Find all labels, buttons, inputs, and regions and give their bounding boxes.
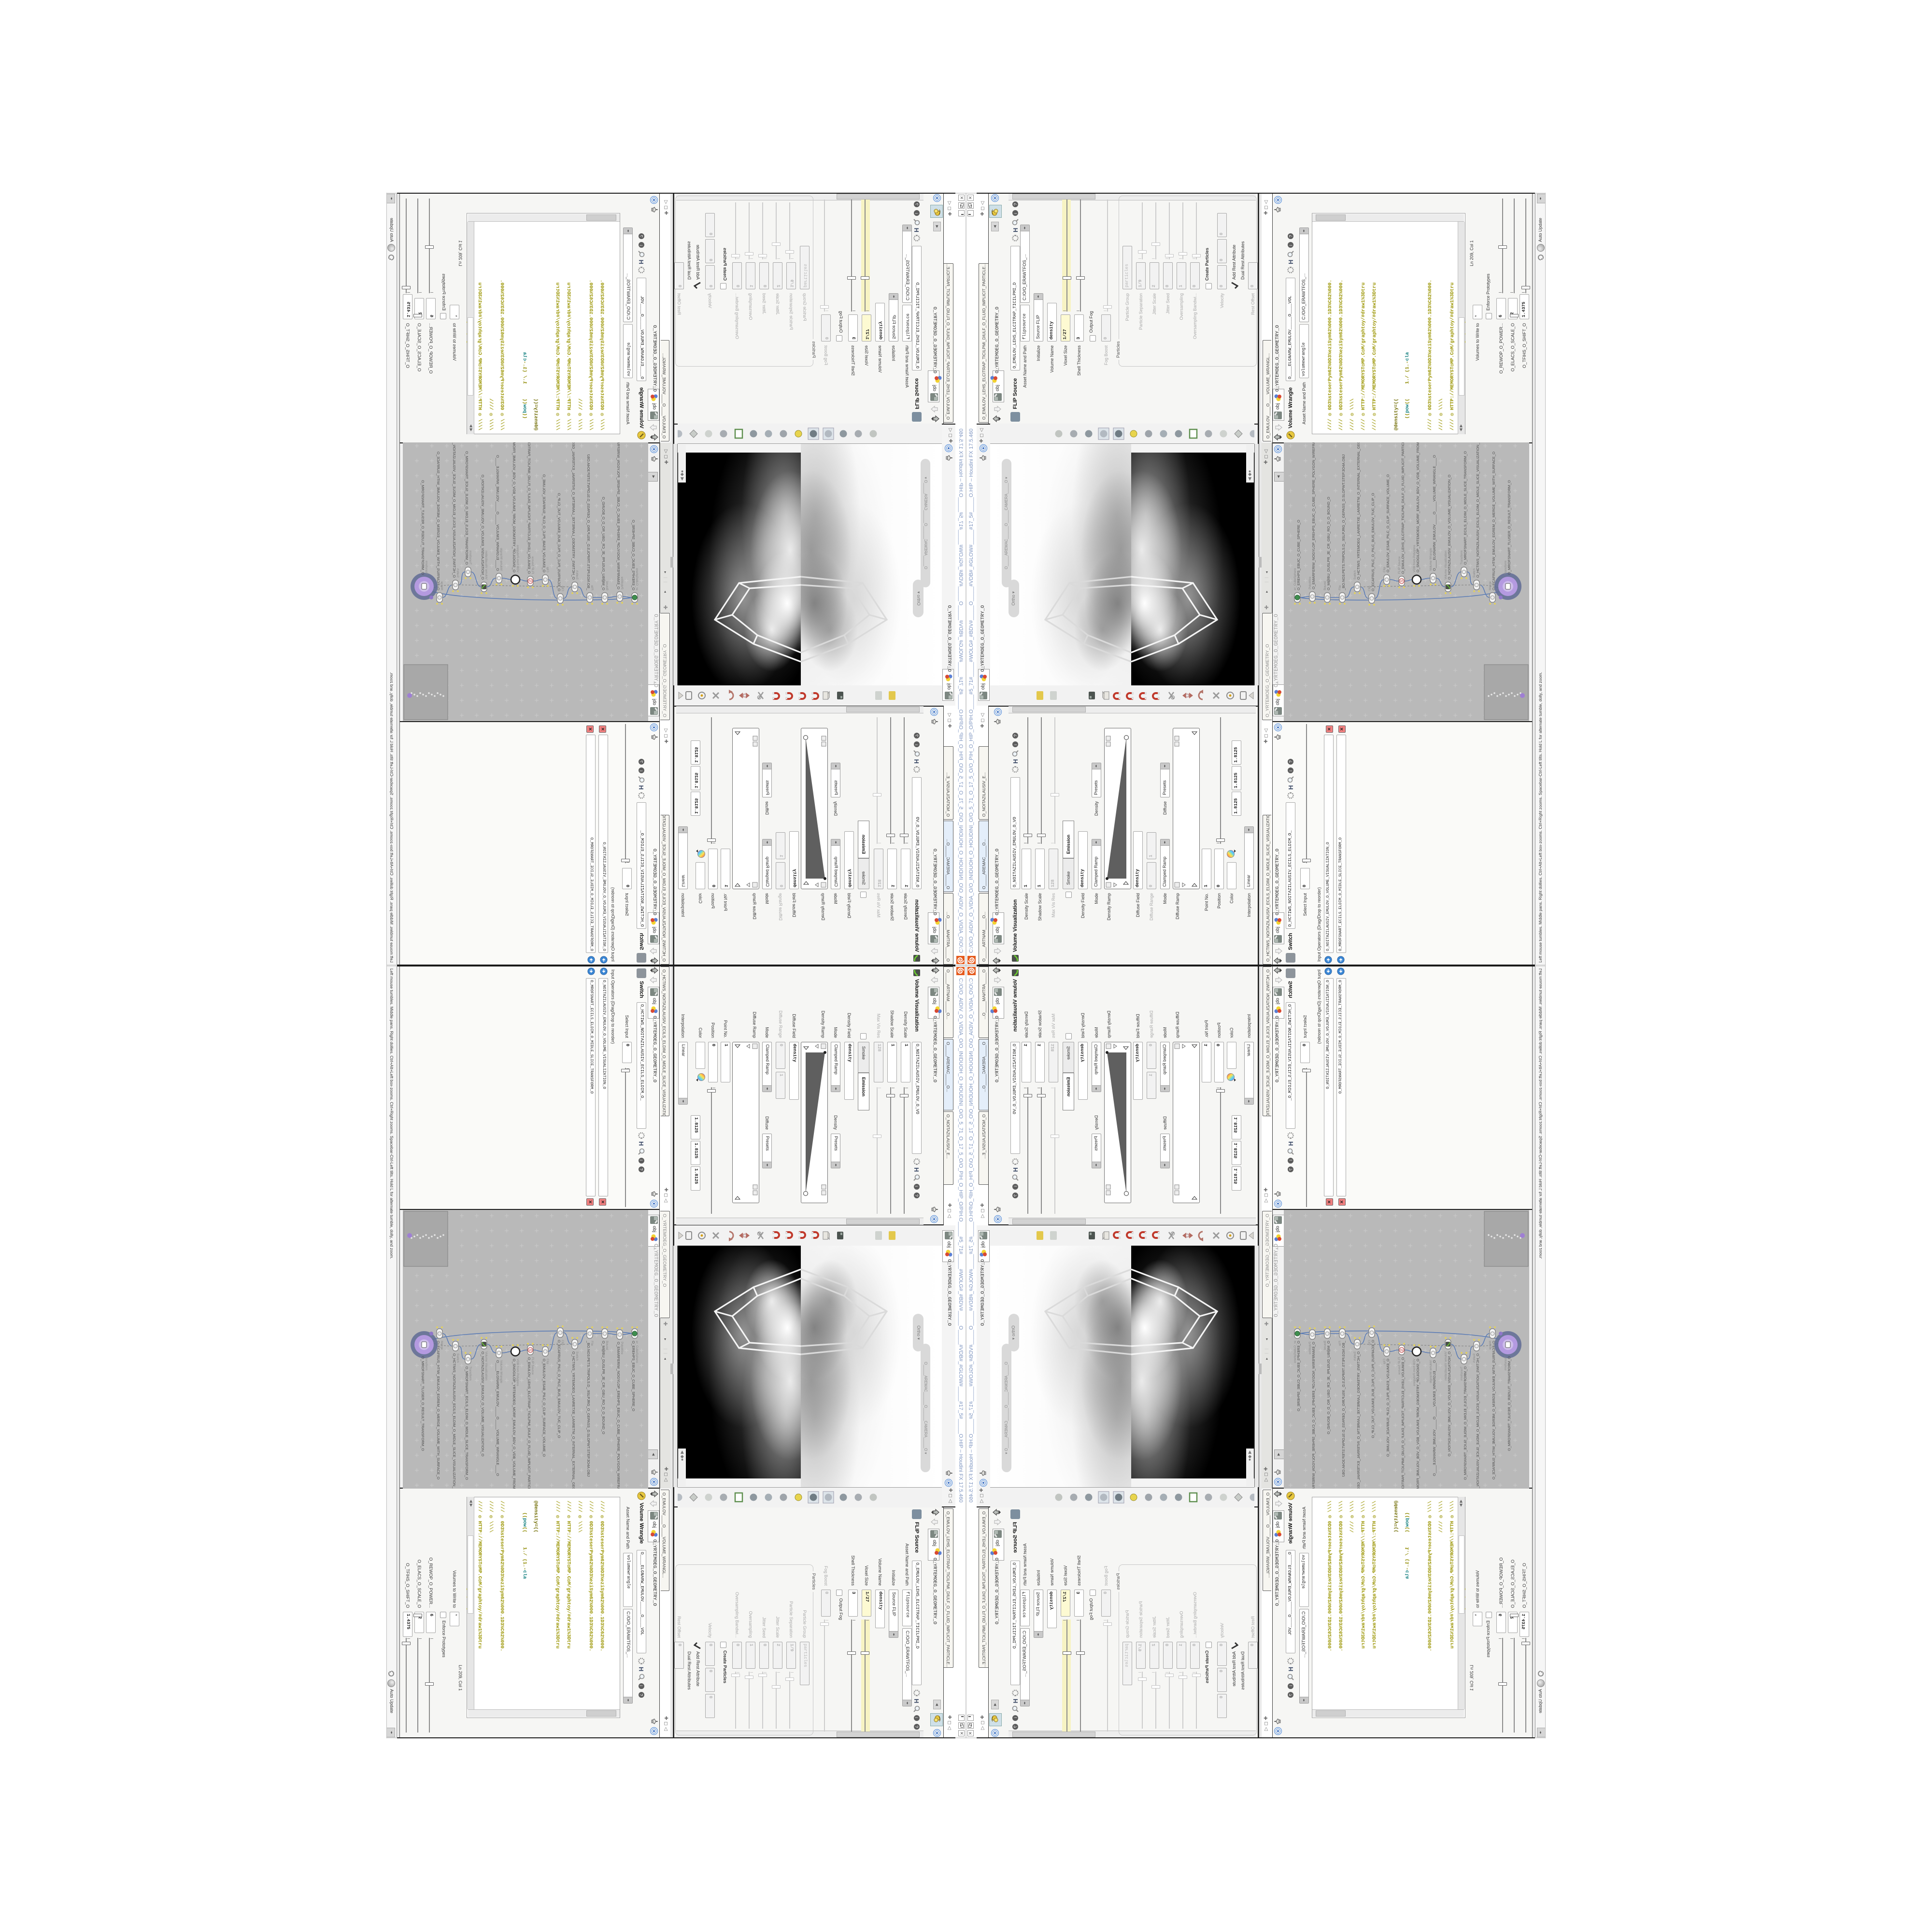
svg-text:?: ?: [639, 760, 644, 763]
svg-text:O_M@BU_DUSLPR_JE_CR_GBU_RO_D_O: O_M@BU_DUSLPR_JE_CR_GBU_RO_D_O_BOUND_O: [601, 497, 606, 590]
svg-text:VDB from Polygons: VDB from Polygons: [516, 545, 519, 572]
svg-text:i: i: [1013, 1186, 1018, 1187]
svg-text:O_HCTIWS_NOITAZILAUSIV_ECILS_E: O_HCTIWS_NOITAZILAUSIV_ECILS_ELDIM_O_MID…: [1476, 1353, 1480, 1489]
svg-text:?: ?: [914, 1726, 919, 1728]
svg-text:O_M@BU_DUSLPR_JE_CR_GBU_RO_D_O: O_M@BU_DUSLPR_JE_CR_GBU_RO_D_O_BOUND_O: [601, 1341, 606, 1435]
svg-text:?: ?: [1013, 734, 1018, 737]
svg-text:O____ELGNARW_EMULOV_____O_____: O____ELGNARW_EMULOV_____O_____VOLUME_WRA…: [496, 1360, 500, 1476]
svg-text:H: H: [913, 1167, 920, 1172]
svg-text:O_EMARFERIW_NOGYLOP_EREHPS_EBU: O_EMARFERIW_NOGYLOP_EREHPS_EBUC_O_CUBE_S…: [1311, 442, 1316, 589]
svg-text:O_ECAFRUS_PILC_O_PILC_BUS_EMUL: O_ECAFRUS_PILC_O_PILC_BUS_EMULOV_TUC_CLI…: [557, 1340, 561, 1438]
svg-text:i: i: [1289, 245, 1293, 246]
svg-text:H: H: [913, 228, 920, 232]
svg-text:H: H: [1012, 759, 1019, 764]
svg-text:H: H: [913, 759, 920, 764]
svg-text:i: i: [1289, 1160, 1293, 1161]
svg-text:O_MROFSNART_TLUSER_O_RESULT_TR: O_MROFSNART_TLUSER_O_RESULT_TRANSFORM_O: [1507, 1356, 1511, 1451]
svg-text:S: S: [1400, 1349, 1404, 1351]
svg-text:O_ECAFRUS_PILC_O_PILC_BUS_EMUL: O_ECAFRUS_PILC_O_PILC_BUS_EMULOV_TUC_CLI…: [1371, 493, 1375, 591]
svg-text:FLIP Source: FLIP Source: [531, 1357, 534, 1375]
svg-text:Transform: Transform: [469, 1366, 472, 1380]
svg-text:O_MROFSNART_ECILS_ELDIM_O_MIDL: O_MROFSNART_ECILS_ELDIM_O_MIDLE_SLICE_TR…: [465, 1366, 469, 1480]
svg-text:H: H: [638, 260, 645, 264]
svg-text:?: ?: [914, 1194, 919, 1197]
svg-text:i: i: [1013, 1717, 1018, 1718]
svg-text:O_EMULOV_ESAB_PILC_O_CLIP_SURF: O_EMULOV_ESAB_PILC_O_CLIP_SURFACE_VOLUME…: [542, 474, 546, 572]
svg-text:O_EMARFERIW_NOGYLOP_EREHPS_EBU: O_EMARFERIW_NOGYLOP_EREHPS_EBUC_O_CUBE_S…: [616, 1342, 621, 1489]
svg-text:PolyWire: PolyWire: [620, 577, 624, 589]
svg-text:O_NOITAZILAUSIV_EMULOV_O_VOLUM: O_NOITAZILAUSIV_EMULOV_O_VOLUME_VISUALIZ…: [481, 475, 485, 580]
svg-text:H: H: [1287, 785, 1294, 790]
svg-text:O_M@BU_DUSLPR_JE_CR_GBU_RO_D_O: O_M@BU_DUSLPR_JE_CR_GBU_RO_D_O_BOUND_O: [1326, 1341, 1331, 1435]
svg-text:O_EREHPS_EBUC_O_CUBE_SPHERE_O: O_EREHPS_EBUC_O_CUBE_SPHERE_O: [1296, 520, 1301, 590]
svg-text:O_EMULOV_LEHS_ELCITRAP_TICILPM: O_EMULOV_LEHS_ELCITRAP_TICILPMI_DIULF_O_…: [527, 442, 531, 574]
svg-text:Volume Visualization: Volume Visualization: [484, 551, 488, 580]
svg-text:?: ?: [914, 203, 919, 205]
svg-text:O_HCTIWS_YRTEMOEG_LANRETXE_LAN: O_HCTIWS_YRTEMOEG_LANRETXE_LANRETNI_O_IN…: [571, 442, 576, 580]
svg-text:?: ?: [639, 235, 644, 237]
svg-text:i: i: [639, 1160, 644, 1161]
svg-text:O_EMULOV_ESAB_PILC_O_CLIP_SURF: O_EMULOV_ESAB_PILC_O_CLIP_SURFACE_VOLUME…: [542, 1359, 546, 1457]
svg-text:O_MROFSNART_TLUSER_O_RESULT_TR: O_MROFSNART_TLUSER_O_RESULT_TRANSFORM_O: [1507, 480, 1511, 575]
svg-text:Volume Wrangle: Volume Wrangle: [499, 548, 503, 571]
svg-text:S: S: [528, 580, 532, 582]
svg-text:File: File: [590, 585, 594, 590]
svg-text:Switch: Switch: [575, 1351, 579, 1361]
svg-text:O_ECAFRUS_HTIW_EMULOV_EGREM_O_: O_ECAFRUS_HTIW_EMULOV_EGREM_O_MERGE_VOLU…: [436, 1341, 440, 1479]
svg-text:_BO.NO3.PETS.TRIPOLS.D_.9SLPJR: _BO.NO3.PETS.TRIPOLS.D_.9SLPJRG_O_GEPASS…: [586, 1340, 591, 1477]
svg-text:O_MROFSNART_ECILS_ELDIM_O_MIDL: O_MROFSNART_ECILS_ELDIM_O_MIDLE_SLICE_TR…: [1463, 1366, 1467, 1480]
svg-text:O_ECAFRUS_HTIW_EMULOV_EGREM_O_: O_ECAFRUS_HTIW_EMULOV_EGREM_O_MERGE_VOLU…: [436, 452, 440, 590]
svg-text:i: i: [1013, 213, 1018, 214]
svg-text:H: H: [1287, 1667, 1294, 1671]
svg-text:i: i: [914, 1717, 919, 1718]
svg-text:O_HCTIWS_NOITAZILAUSIV_ECILS_E: O_HCTIWS_NOITAZILAUSIV_ECILS_ELDIM_O_MID…: [1476, 442, 1480, 578]
svg-text:O_HCTIWS_YRTEMOEG_LANRETXE_LAN: O_HCTIWS_YRTEMOEG_LANRETXE_LANRETNI_O_IN…: [1356, 1351, 1361, 1489]
svg-text:_BO.NO3.PETS.TRIPOLS.D_.9SLPJR: _BO.NO3.PETS.TRIPOLS.D_.9SLPJRG_O_GEPASS…: [1341, 455, 1346, 591]
svg-text:File: File: [590, 1341, 594, 1346]
svg-text:O_EMULOV_LEHS_ELCITRAP_TICILPM: O_EMULOV_LEHS_ELCITRAP_TICILPMI_DIULF_O_…: [1401, 1357, 1405, 1489]
svg-text:Transform: Transform: [425, 561, 428, 575]
svg-text:O_MROFSNART_TLUSER_O_RESULT_TR: O_MROFSNART_TLUSER_O_RESULT_TRANSFORM_O: [421, 1356, 425, 1451]
svg-text:H: H: [1287, 1141, 1294, 1146]
svg-text:FLIP Source: FLIP Source: [531, 556, 534, 574]
svg-text:Switch: Switch: [456, 568, 459, 578]
svg-text:O_SNOGILOP_YRTEMOEG_MORF_EMULO: O_SNOGILOP_YRTEMOEG_MORF_EMULOV_BDV_O_VD…: [1416, 1359, 1420, 1489]
svg-text:?: ?: [914, 734, 919, 737]
svg-text:Transform: Transform: [469, 551, 472, 565]
svg-text:O_ECAFRUS_HTIW_EMULOV_EGREM_O_: O_ECAFRUS_HTIW_EMULOV_EGREM_O_MERGE_VOLU…: [1492, 452, 1496, 590]
svg-text:i: i: [914, 1186, 919, 1187]
svg-text:?: ?: [639, 1168, 644, 1171]
svg-text:O_EMULOV_ESAB_PILC_O_CLIP_SURF: O_EMULOV_ESAB_PILC_O_CLIP_SURFACE_VOLUME…: [1386, 1359, 1390, 1457]
svg-text:?: ?: [1289, 760, 1293, 763]
svg-text:O_HCTIWS_YRTEMOEG_LANRETXE_LAN: O_HCTIWS_YRTEMOEG_LANRETXE_LANRETNI_O_IN…: [1356, 442, 1361, 580]
svg-text:Merge: Merge: [440, 581, 443, 590]
svg-text:?: ?: [639, 1694, 644, 1696]
svg-text:H: H: [638, 1667, 645, 1671]
svg-text:O____ELGNARW_EMULOV_____O_____: O____ELGNARW_EMULOV_____O_____VOLUME_WRA…: [1432, 455, 1436, 571]
svg-text:O_SNOGILOP_YRTEMOEG_MORF_EMULO: O_SNOGILOP_YRTEMOEG_MORF_EMULOV_BDV_O_VD…: [1416, 442, 1420, 572]
svg-text:_BO.NO3.PETS.TRIPOLS.D_.9SLPJR: _BO.NO3.PETS.TRIPOLS.D_.9SLPJRG_O_GEPASS…: [586, 455, 591, 591]
svg-text:Clip: Clip: [561, 1340, 564, 1346]
svg-text:_BO.NO3.PETS.TRIPOLS.D_.9SLPJR: _BO.NO3.PETS.TRIPOLS.D_.9SLPJRG_O_GEPASS…: [1341, 1340, 1346, 1477]
svg-text:O_EMULOV_LEHS_ELCITRAP_TICILPM: O_EMULOV_LEHS_ELCITRAP_TICILPMI_DIULF_O_…: [527, 1357, 531, 1489]
svg-text:Volume Wrangle: Volume Wrangle: [499, 1360, 503, 1383]
svg-text:er_CubeSphere: er_CubeSphere: [635, 568, 639, 590]
svg-text:Clip: Clip: [561, 585, 564, 591]
svg-text:?: ?: [1013, 1726, 1018, 1728]
svg-text:O_EREHPS_EBUC_O_CUBE_SPHERE_O: O_EREHPS_EBUC_O_CUBE_SPHERE_O: [631, 520, 636, 590]
svg-text:O_HCTIWS_YRTEMOEG_LANRETXE_LAN: O_HCTIWS_YRTEMOEG_LANRETXE_LANRETNI_O_IN…: [571, 1351, 576, 1489]
svg-text:Volume Visualization: Volume Visualization: [484, 1351, 488, 1380]
svg-text:Merge: Merge: [440, 1341, 443, 1350]
svg-text:?: ?: [1289, 235, 1293, 237]
svg-text:?: ?: [1013, 203, 1018, 205]
svg-text:i: i: [1289, 770, 1293, 771]
svg-text:O____ELGNARW_EMULOV_____O_____: O____ELGNARW_EMULOV_____O_____VOLUME_WRA…: [496, 455, 500, 571]
svg-text:?: ?: [1289, 1694, 1293, 1696]
svg-text:O_MROFSNART_ECILS_ELDIM_O_MIDL: O_MROFSNART_ECILS_ELDIM_O_MIDLE_SLICE_TR…: [1463, 451, 1467, 565]
svg-text:i: i: [639, 770, 644, 771]
svg-text:O_EMULOV_ESAB_PILC_O_CLIP_SURF: O_EMULOV_ESAB_PILC_O_CLIP_SURFACE_VOLUME…: [1386, 474, 1390, 572]
svg-text:O_SNOGILOP_YRTEMOEG_MORF_EMULO: O_SNOGILOP_YRTEMOEG_MORF_EMULOV_BDV_O_VD…: [512, 1359, 516, 1489]
svg-text:H: H: [1012, 1699, 1019, 1703]
svg-text:i: i: [914, 213, 919, 214]
svg-text:i: i: [914, 744, 919, 745]
svg-text:O____ELGNARW_EMULOV_____O_____: O____ELGNARW_EMULOV_____O_____VOLUME_WRA…: [1432, 1360, 1436, 1476]
svg-text:O_EMARFERIW_NOGYLOP_EREHPS_EBU: O_EMARFERIW_NOGYLOP_EREHPS_EBUC_O_CUBE_S…: [616, 442, 621, 589]
svg-text:PolyWire: PolyWire: [620, 1342, 624, 1354]
svg-text:O_MROFSNART_ECILS_ELDIM_O_MIDL: O_MROFSNART_ECILS_ELDIM_O_MIDLE_SLICE_TR…: [465, 451, 469, 565]
svg-text:Switch: Switch: [575, 570, 579, 580]
svg-text:O_HCTIWS_NOITAZILAUSIV_ECILS_E: O_HCTIWS_NOITAZILAUSIV_ECILS_ELDIM_O_MID…: [452, 442, 456, 578]
svg-text:O_NOITAZILAUSIV_EMULOV_O_VOLUM: O_NOITAZILAUSIV_EMULOV_O_VOLUME_VISUALIZ…: [481, 1351, 485, 1456]
svg-text:S: S: [528, 1349, 532, 1351]
svg-text:S: S: [1400, 580, 1404, 582]
svg-text:H: H: [638, 1141, 645, 1146]
svg-text:?: ?: [1289, 1168, 1293, 1171]
svg-text:i: i: [639, 245, 644, 246]
svg-text:i: i: [1013, 744, 1018, 745]
svg-text:O_M@BU_DUSLPR_JE_CR_GBU_RO_D_O: O_M@BU_DUSLPR_JE_CR_GBU_RO_D_O_BOUND_O: [1326, 497, 1331, 590]
svg-text:i: i: [639, 1685, 644, 1686]
svg-text:O_EREHPS_EBUC_O_CUBE_SPHERE_O: O_EREHPS_EBUC_O_CUBE_SPHERE_O: [1296, 1341, 1301, 1411]
svg-text:O_ECAFRUS_HTIW_EMULOV_EGREM_O_: O_ECAFRUS_HTIW_EMULOV_EGREM_O_MERGE_VOLU…: [1492, 1341, 1496, 1479]
svg-text:O_EMULOV_LEHS_ELCITRAP_TICILPM: O_EMULOV_LEHS_ELCITRAP_TICILPMI_DIULF_O_…: [1401, 442, 1405, 574]
svg-text:O_EREHPS_EBUC_O_CUBE_SPHERE_O: O_EREHPS_EBUC_O_CUBE_SPHERE_O: [631, 1341, 636, 1411]
svg-text:Bound: Bound: [605, 1341, 609, 1350]
svg-text:Clip: Clip: [546, 567, 549, 572]
svg-text:O_HCTIWS_NOITAZILAUSIV_ECILS_E: O_HCTIWS_NOITAZILAUSIV_ECILS_ELDIM_O_MID…: [452, 1353, 456, 1489]
svg-text:H: H: [1287, 260, 1294, 264]
svg-text:Clip: Clip: [546, 1359, 549, 1364]
svg-text:i: i: [1289, 1685, 1293, 1686]
svg-text:er_CubeSphere: er_CubeSphere: [635, 1341, 639, 1363]
svg-text:Switch: Switch: [456, 1353, 459, 1363]
svg-text:O_MROFSNART_TLUSER_O_RESULT_TR: O_MROFSNART_TLUSER_O_RESULT_TRANSFORM_O: [421, 480, 425, 575]
svg-text:H: H: [638, 785, 645, 790]
svg-text:O_EMARFERIW_NOGYLOP_EREHPS_EBU: O_EMARFERIW_NOGYLOP_EREHPS_EBUC_O_CUBE_S…: [1311, 1342, 1316, 1489]
svg-text:O_ECAFRUS_PILC_O_PILC_BUS_EMUL: O_ECAFRUS_PILC_O_PILC_BUS_EMULOV_TUC_CLI…: [557, 493, 561, 591]
svg-text:H: H: [1012, 228, 1019, 232]
svg-text:?: ?: [1013, 1194, 1018, 1197]
svg-text:O_ECAFRUS_PILC_O_PILC_BUS_EMUL: O_ECAFRUS_PILC_O_PILC_BUS_EMULOV_TUC_CLI…: [1371, 1340, 1375, 1438]
svg-text:O_NOITAZILAUSIV_EMULOV_O_VOLUM: O_NOITAZILAUSIV_EMULOV_O_VOLUME_VISUALIZ…: [1447, 1351, 1451, 1456]
svg-text:Transform: Transform: [425, 1356, 428, 1370]
svg-text:VDB from Polygons: VDB from Polygons: [516, 1359, 519, 1386]
svg-text:H: H: [1012, 1167, 1019, 1172]
svg-text:O_NOITAZILAUSIV_EMULOV_O_VOLUM: O_NOITAZILAUSIV_EMULOV_O_VOLUME_VISUALIZ…: [1447, 475, 1451, 580]
svg-text:H: H: [913, 1699, 920, 1703]
svg-text:Bound: Bound: [605, 581, 609, 590]
svg-text:O_SNOGILOP_YRTEMOEG_MORF_EMULO: O_SNOGILOP_YRTEMOEG_MORF_EMULOV_BDV_O_VD…: [512, 442, 516, 572]
